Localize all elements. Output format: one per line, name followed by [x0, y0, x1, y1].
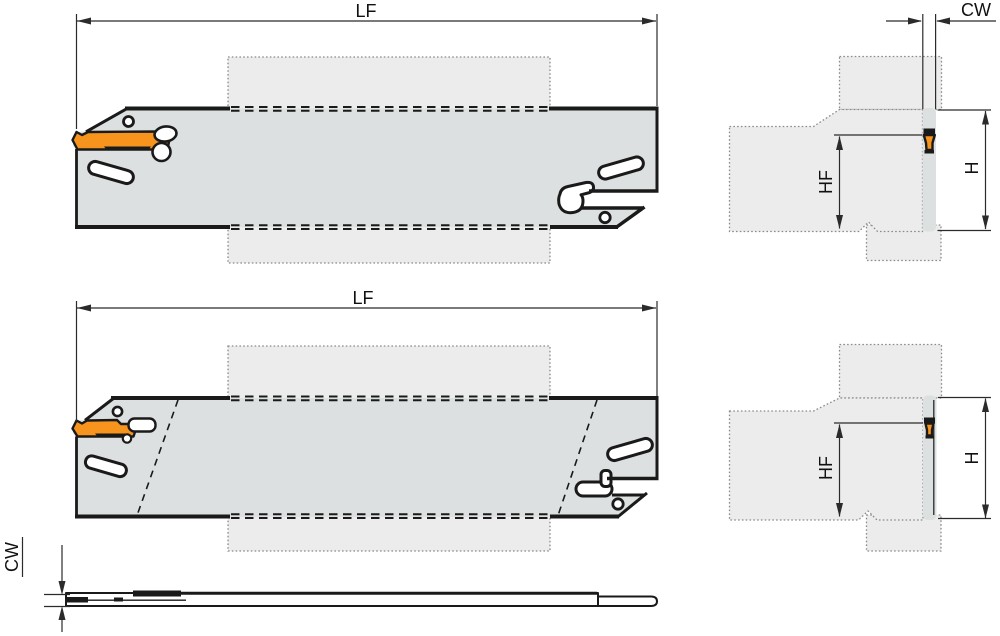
holder-block-upper: [840, 57, 942, 110]
pin-hole-left: [113, 407, 122, 416]
front-view-top: LF: [73, 1, 659, 263]
blade-edge-view: [923, 108, 937, 232]
blade-body: [73, 398, 657, 517]
dim-label-lf-top: LF: [355, 1, 376, 21]
side-view-top: CW HF H: [730, 0, 997, 261]
insert-top-view: [65, 597, 88, 603]
pin-hole-left: [124, 117, 134, 127]
insert-seat: [925, 150, 935, 154]
clamp-screw: [123, 434, 131, 442]
side-view-bottom: HF H: [730, 345, 992, 552]
dim-h-bottom: H: [938, 398, 991, 519]
insert-seat-jaw: [104, 147, 151, 151]
technical-drawing-page: LF LF: [0, 0, 1000, 636]
drawing-canvas: LF LF: [0, 0, 1000, 636]
insert-seat: [926, 436, 934, 439]
cutting-insert-edge: [924, 135, 935, 150]
clamp-screw: [153, 143, 171, 161]
blade-edge-view: [923, 396, 937, 521]
dim-label-h-bottom: H: [962, 452, 982, 465]
dim-label-cw-top: CW: [961, 0, 991, 20]
dim-label-hf-bottom: HF: [816, 456, 836, 480]
holder-block-upper: [840, 345, 942, 399]
pin-hole-right: [613, 499, 623, 509]
dim-label-hf-top: HF: [816, 170, 836, 194]
dim-label-lf-bottom: LF: [352, 288, 373, 308]
dim-label-h-top: H: [962, 162, 982, 175]
clamp-finger: [129, 419, 156, 432]
holder-block-lower: [867, 515, 942, 551]
cutting-insert-edge: [926, 424, 934, 436]
pin-hole-right: [600, 212, 610, 222]
front-view-bottom: LF: [73, 288, 659, 551]
top-view: CW: [2, 537, 657, 632]
dim-label-cw-bottom: CW: [2, 542, 22, 572]
clamp-block-top: [133, 591, 181, 597]
dim-h-top: H: [938, 110, 992, 231]
dim-cw-bottom: CW: [2, 537, 70, 632]
